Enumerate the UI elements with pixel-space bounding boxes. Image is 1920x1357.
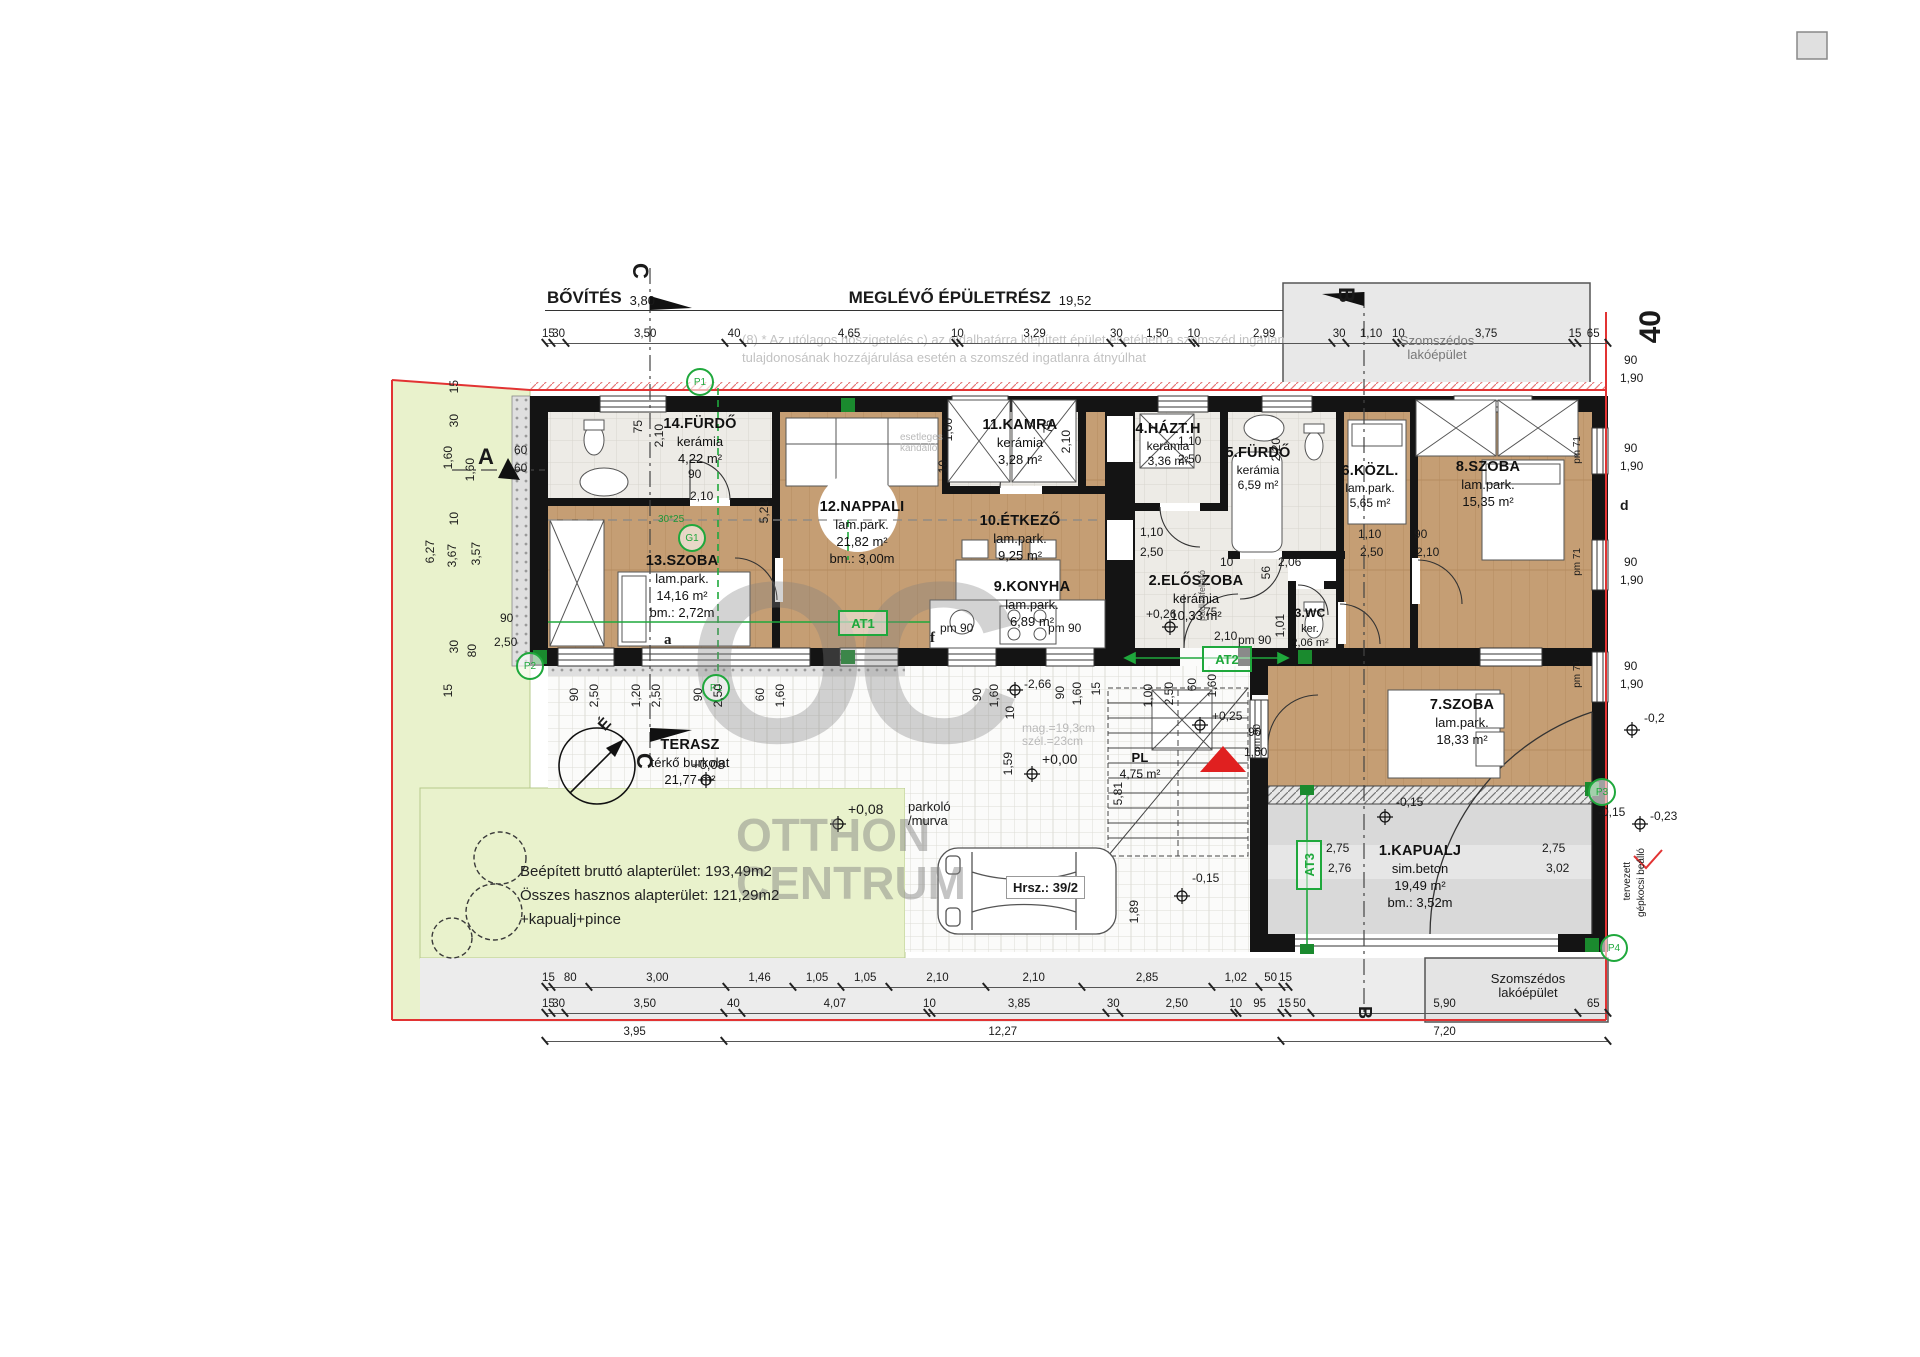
dim-terasz-1: 2,50 (588, 684, 601, 707)
level-plus025: +0,25 (1212, 710, 1242, 723)
dim-left-10: 15 (442, 684, 455, 697)
marker-at3: AT3 (1296, 840, 1322, 890)
dim-left-6: 3,67 (446, 544, 459, 567)
dim-misc-21: 1,01 (1274, 614, 1287, 637)
dim-misc-31: 1,59 (1002, 752, 1015, 775)
room-label-wc: 3.WCker.2,06 m² (1291, 606, 1328, 650)
area-summary: Beépített bruttó alapterület: 193,49m2Ös… (520, 860, 779, 932)
level-minus015-kapualj: -0,15 (1396, 796, 1423, 809)
bottom-dimension-chain-c: 3,9512,277,20 (545, 1026, 1608, 1042)
dim-misc-28: 90 (1054, 686, 1067, 699)
dim-terasz-6: 60 (754, 688, 767, 701)
dim-misc-17: 2,20 (1270, 438, 1283, 461)
dim-left-0: 15 (448, 380, 461, 393)
marker-at1: AT1 (838, 610, 888, 636)
room-label-furdo14: 14.FÜRDŐkerámia4,22 m² (663, 415, 736, 468)
dim-misc-10: 60 (514, 462, 527, 475)
room-label-szoba7: 7.SZOBAlam.park.18,33 m² (1430, 696, 1494, 749)
dim-right-0: 90 (1624, 354, 1637, 367)
room-label-etkezo: 10.ÉTKEZŐlam.park.9,25 m² (980, 512, 1061, 565)
dim-misc-14: 2,50 (1140, 546, 1163, 559)
bovites-value: 3,80 (630, 293, 655, 308)
regulation-note-2: tulajdonosának hozzájárulása esetén a sz… (742, 350, 1146, 365)
dim-misc-1: 1,00 (942, 418, 955, 441)
carport-label-1: tervezett (1622, 862, 1633, 900)
floorplan-page: OC OTTHON CENTRUM BŐVÍTÉS 3,80 MEGLÉVŐ É… (0, 0, 1920, 1357)
dim-terasz-5: 2,50 (712, 684, 725, 707)
dim-right-6: 90 (1624, 660, 1637, 673)
watermark-line1: OTTHON (736, 808, 930, 862)
dim-misc-32: 5,81 (1112, 782, 1125, 805)
dim-right-3: 1,90 (1620, 460, 1643, 473)
dim-misc-13: 1,10 (1140, 526, 1163, 539)
dim-left-7: 3,57 (470, 542, 483, 565)
window-label-pm71-3: pm 71 (1572, 660, 1583, 688)
door-mark-f: f (930, 630, 935, 647)
neighbor-bottom: Szomszédoslakóépület (1491, 972, 1565, 1001)
dim-misc-44: -2,66 (1024, 678, 1051, 691)
dim-left-4: 10 (448, 512, 461, 525)
dim-misc-3: 75 (1042, 420, 1055, 433)
dim-terasz-3: 2,50 (650, 684, 663, 707)
dim-90-terasz: 90 (500, 612, 513, 625)
bottom-dimension-chain-a: 15803,001,461,051,052,102,102,851,025015 (545, 972, 1289, 988)
level-plus000: +0,00 (1042, 752, 1077, 767)
marker-p4: P4 (1600, 934, 1628, 962)
dim-misc-18: 56 (1260, 566, 1273, 579)
dim-right-2: 90 (1624, 442, 1637, 455)
dim-misc-26: 90 (1414, 528, 1427, 541)
dim-left-2: 1,60 (442, 446, 455, 469)
door-mark-a: a (664, 632, 672, 649)
dim-misc-6: 2,10 (653, 424, 666, 447)
fireplace-note: esetlegeskandalló (900, 432, 943, 454)
plot-ref-label: Hrsz.: 39/2 (1006, 876, 1085, 899)
dim-misc-16: 2,50 (1178, 453, 1201, 466)
level-minus02: -0,2 (1644, 712, 1665, 725)
room-label-kapualj: 1.KAPUALJsim.beton19,49 m²bm.: 3,52m (1379, 842, 1461, 912)
dim-terasz-4: 90 (692, 688, 705, 701)
marker-p2: P2 (516, 652, 544, 680)
level-plus008: +0,08 (848, 802, 883, 817)
watermark-monogram: OC (688, 548, 1009, 778)
dim-left-3: 1,60 (464, 458, 477, 481)
dim-misc-19: 10 (1220, 556, 1233, 569)
room-label-szoba8: 8.SZOBAlam.park.15,35 m² (1456, 458, 1520, 511)
dim-misc-42: 2,75 (1542, 842, 1565, 855)
dim-misc-15: 1,10 (1178, 435, 1201, 448)
window-label-pm90-1: pm 90 (940, 622, 973, 635)
dim-misc-46: 1,60 (988, 684, 1001, 707)
dim-misc-41: 2,76 (1328, 862, 1351, 875)
bovites-measure: BŐVÍTÉS 3,80 (545, 288, 657, 311)
stair-note: mag.=19,3cmszél.=23cm (1022, 722, 1095, 748)
dim-misc-0: 5,21 (758, 500, 771, 523)
dim-left-5: 6,27 (424, 540, 437, 563)
dim-misc-39: 1,60 (1244, 746, 1267, 759)
parking-label: parkoló/murva (908, 800, 951, 829)
neighbor-top: Szomszédoslakóépület (1400, 334, 1474, 363)
dim-misc-47: 15 (1090, 682, 1103, 695)
dim-misc-37: 1,60 (1206, 674, 1219, 697)
dim-misc-34: 1,00 (1142, 684, 1155, 707)
dim-terasz-7: 1,60 (774, 684, 787, 707)
plot-number: 40 (1634, 310, 1667, 343)
dim-misc-20: 2,06 (1278, 556, 1301, 569)
window-label-pm90-3: pm 90 (1238, 634, 1271, 647)
section-c-bottom: C (636, 748, 652, 774)
dim-right-4: 90 (1624, 556, 1637, 569)
dim-left-9: 80 (466, 644, 479, 657)
section-b-bottom: B (1358, 1002, 1371, 1023)
dim-left-8: 30 (448, 640, 461, 653)
section-b-top: B (1338, 282, 1354, 308)
size-note-green: 30*25 (658, 514, 684, 525)
dim-misc-29: 1,60 (1071, 682, 1084, 705)
room-label-nappali: 12.NAPPALIlam.park.21,82 m²bm.: 3,00m (820, 498, 905, 568)
dim-misc-27: 2,10 (1416, 546, 1439, 559)
marker-p3: P3 (1588, 778, 1616, 806)
dim-misc-4: 2,10 (1060, 430, 1073, 453)
dim-terasz-2: 1,20 (630, 684, 643, 707)
room-label-szoba13: 13.SZOBAlam.park.14,16 m²bm.: 2,72m (646, 552, 719, 622)
dim-250-terasz: 2,50 (494, 636, 517, 649)
carport-label-2: gépkocsi beálló (1636, 848, 1647, 917)
marker-p1-top: P1 (686, 368, 714, 396)
level-minus015-court: -0,15 (1192, 872, 1219, 885)
dim-right-7: 1,90 (1620, 678, 1643, 691)
level-plus008-terasz: +0,08 (692, 758, 725, 772)
level-plus026: +0,26 (1146, 608, 1176, 621)
window-label-pm71-1: pm 71 (1572, 436, 1583, 464)
dim-misc-2: 10 (937, 460, 950, 473)
dim-misc-38: 90 (1248, 726, 1261, 739)
dim-misc-24: 1,10 (1358, 528, 1381, 541)
dim-left-1: 30 (448, 414, 461, 427)
dim-misc-35: 2,50 (1163, 682, 1176, 705)
dim-misc-5: 75 (632, 420, 645, 433)
dim-misc-45: 90 (971, 688, 984, 701)
dim-misc-30: 10 (1004, 706, 1017, 719)
section-a: A (478, 444, 494, 470)
marker-g1: G1 (678, 524, 706, 552)
dim-misc-25: 2,50 (1360, 546, 1383, 559)
dim-terasz-0: 90 (568, 688, 581, 701)
dim-misc-8: 2,10 (690, 490, 713, 503)
dim-right-5: 1,90 (1620, 574, 1643, 587)
level-minus023: -0,23 (1650, 810, 1677, 823)
marker-at2: AT2 (1202, 646, 1252, 672)
dim-right-1: 1,90 (1620, 372, 1643, 385)
level-minus015-right: -0,15 (1598, 806, 1625, 819)
dim-misc-9: 60 (514, 444, 527, 457)
dim-misc-7: 90 (688, 468, 701, 481)
meglevo-label: MEGLÉVŐ ÉPÜLETRÉSZ (849, 288, 1051, 308)
meglevo-value: 19,52 (1059, 293, 1092, 308)
room-label-pl: PL4,75 m² (1120, 750, 1161, 782)
section-d: d (1620, 498, 1629, 513)
dim-misc-36: 60 (1186, 678, 1199, 691)
dim-misc-23: 2,10 (1214, 630, 1237, 643)
window-label-pm90-2: pm 90 (1048, 622, 1081, 635)
dim-misc-43: 3,02 (1546, 862, 1569, 875)
dim-misc-33: 1,89 (1128, 900, 1141, 923)
bovites-label: BŐVÍTÉS (547, 288, 622, 308)
gate-line (1295, 939, 1558, 946)
window-label-pm71-2: pm 71 (1572, 548, 1583, 576)
section-c-top: C (632, 258, 648, 284)
room-label-kozl: 6.KÖZL.lam.park.5,65 m² (1342, 462, 1399, 512)
dim-misc-40: 2,75 (1326, 842, 1349, 855)
dim-misc-22: 75 (1204, 606, 1217, 619)
meglevo-measure: MEGLÉVŐ ÉPÜLETRÉSZ 19,52 (657, 288, 1283, 311)
bottom-dimension-chain-b: 15303,50404,07103,85302,50109515505,9065 (545, 998, 1608, 1014)
